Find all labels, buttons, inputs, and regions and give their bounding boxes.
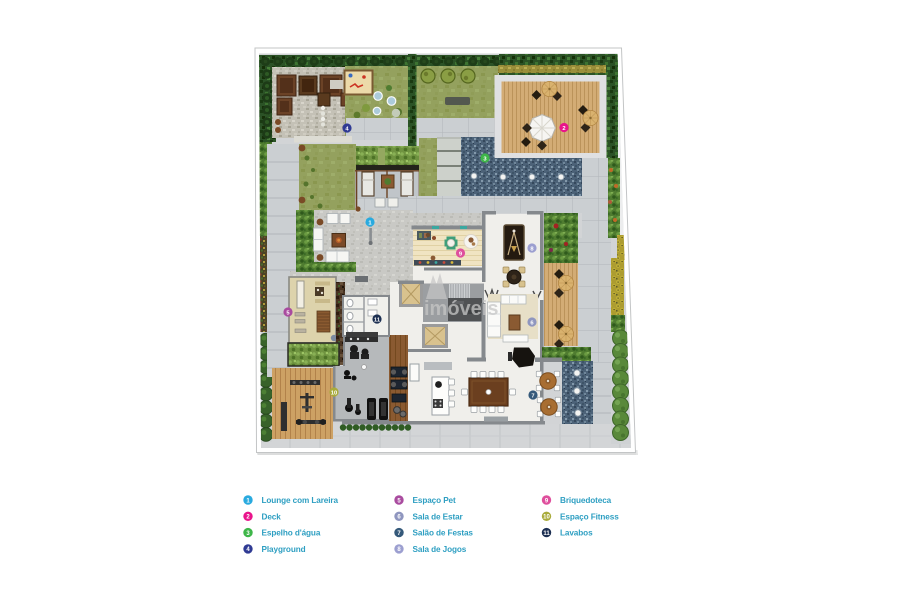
svg-text:Espelho d'água: Espelho d'água [262, 529, 321, 538]
svg-text:Deck: Deck [262, 512, 282, 521]
svg-text:Sala de Estar: Sala de Estar [413, 512, 464, 521]
svg-text:Playground: Playground [262, 545, 306, 554]
svg-text:11: 11 [374, 317, 381, 323]
svg-text:7: 7 [531, 393, 534, 399]
svg-text:10: 10 [331, 390, 337, 396]
svg-text:Lavabos: Lavabos [560, 529, 593, 538]
svg-text:Sala de Jogos: Sala de Jogos [413, 545, 467, 554]
svg-text:11: 11 [543, 531, 550, 537]
svg-text:Espaço Fitness: Espaço Fitness [560, 512, 619, 521]
svg-text:Espaço Pet: Espaço Pet [413, 496, 457, 505]
svg-text:imóveis: imóveis [424, 298, 498, 320]
svg-text:Briquedoteca: Briquedoteca [560, 496, 612, 505]
svg-text:10: 10 [543, 515, 550, 521]
svg-text:Lounge com Lareira: Lounge com Lareira [262, 496, 339, 505]
svg-text:2: 2 [562, 126, 565, 132]
svg-text:Salão de Festas: Salão de Festas [413, 529, 474, 538]
